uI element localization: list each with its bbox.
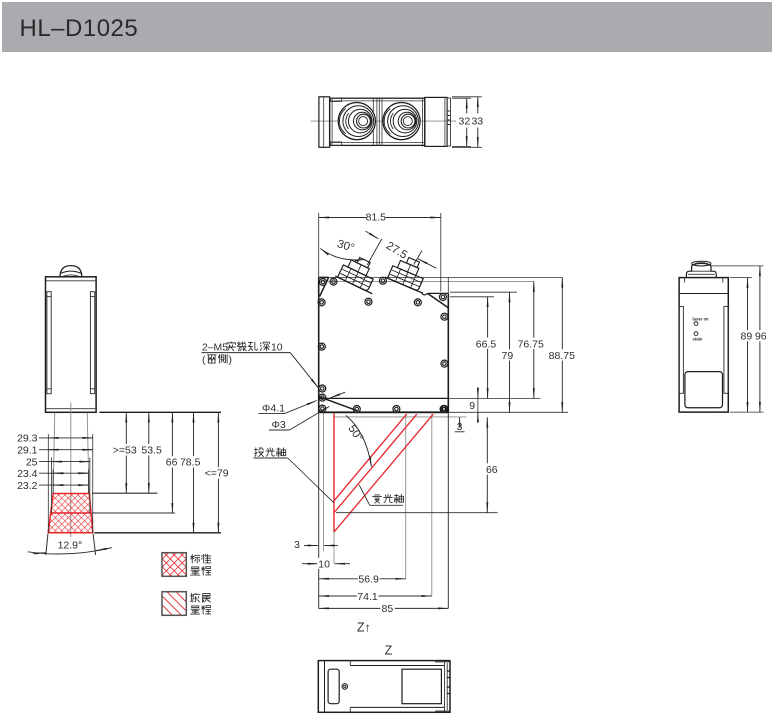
svg-text:2–M5: 2–M5 bbox=[202, 343, 228, 354]
svg-text:29.1: 29.1 bbox=[17, 445, 38, 457]
svg-text:25: 25 bbox=[26, 456, 38, 468]
svg-text:78.5: 78.5 bbox=[180, 457, 201, 469]
svg-text:Φ4.1: Φ4.1 bbox=[262, 402, 285, 414]
svg-text:9: 9 bbox=[469, 400, 475, 412]
svg-text:23.4: 23.4 bbox=[17, 468, 38, 480]
svg-text:66: 66 bbox=[166, 457, 178, 469]
svg-text:Z: Z bbox=[385, 644, 393, 658]
svg-text:12.9°: 12.9° bbox=[58, 539, 83, 551]
svg-text:29.3: 29.3 bbox=[17, 433, 38, 445]
svg-text:79: 79 bbox=[502, 350, 514, 362]
svg-text:56.9: 56.9 bbox=[358, 574, 379, 586]
svg-text:): ) bbox=[229, 355, 232, 366]
svg-text:laser on: laser on bbox=[693, 316, 710, 321]
svg-text:<=79: <=79 bbox=[205, 468, 229, 480]
svg-text:Φ3: Φ3 bbox=[272, 419, 286, 431]
svg-text:81.5: 81.5 bbox=[366, 212, 387, 224]
svg-text:HL–D1025: HL–D1025 bbox=[20, 15, 139, 42]
svg-text:74.1: 74.1 bbox=[357, 591, 378, 603]
svg-text:Z↑: Z↑ bbox=[357, 621, 371, 635]
svg-text:3: 3 bbox=[294, 539, 300, 551]
svg-text:10: 10 bbox=[271, 343, 283, 354]
svg-text:96: 96 bbox=[755, 331, 767, 343]
svg-text:85: 85 bbox=[382, 603, 394, 615]
svg-text:32: 32 bbox=[459, 116, 471, 128]
svg-text:state: state bbox=[693, 337, 703, 342]
svg-text:66: 66 bbox=[486, 464, 498, 476]
svg-text:10: 10 bbox=[318, 558, 330, 570]
svg-text:53.5: 53.5 bbox=[141, 444, 162, 456]
svg-text:88.75: 88.75 bbox=[549, 350, 575, 362]
svg-text:89: 89 bbox=[741, 331, 753, 343]
svg-text:(: ( bbox=[202, 355, 206, 366]
svg-text:66.5: 66.5 bbox=[476, 339, 497, 351]
svg-text:>=53: >=53 bbox=[113, 444, 137, 456]
svg-text:33: 33 bbox=[471, 116, 483, 128]
svg-text:76.75: 76.75 bbox=[518, 339, 544, 351]
svg-text:23.2: 23.2 bbox=[17, 480, 38, 492]
